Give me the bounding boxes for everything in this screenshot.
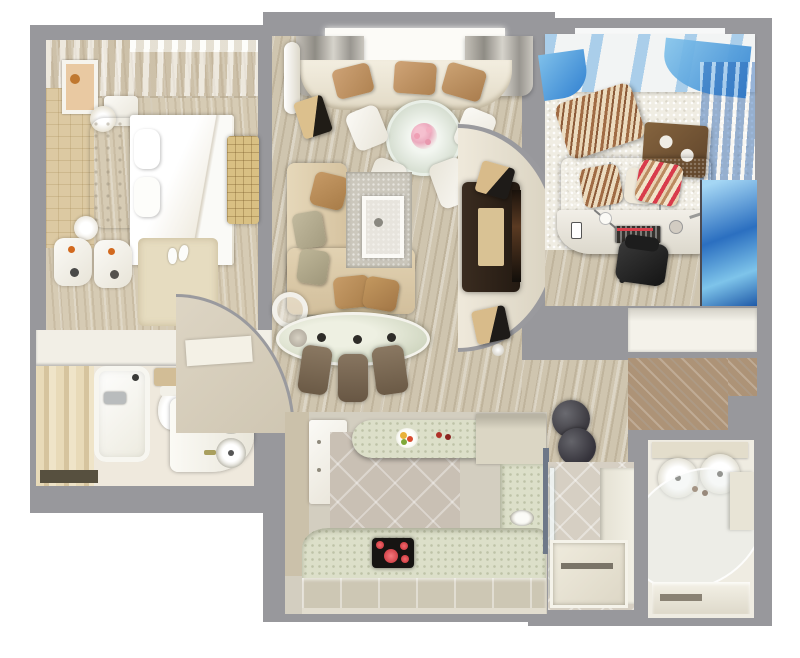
sofa-pillow-sage: [291, 210, 327, 251]
wardrobe-mural-blue: [700, 180, 757, 306]
cup: [110, 270, 119, 279]
tub-faucet: [104, 392, 126, 404]
bed-pillow: [134, 129, 160, 169]
bar-leg-dot: [317, 333, 326, 342]
round-sink: [216, 438, 246, 468]
pillow-striped-beige: [578, 163, 624, 209]
room-ensuite: [648, 440, 754, 618]
ensuite-shelf: [652, 442, 748, 458]
bathtub: [94, 366, 150, 462]
desk-phone: [571, 222, 582, 239]
wall-picture: [62, 60, 98, 114]
table-item: [374, 218, 383, 227]
office-chair: [611, 240, 673, 296]
bathroom-striped-tile-wall: [36, 366, 94, 486]
bar-leg-dot: [353, 335, 362, 344]
pillow-striped-red: [634, 158, 685, 207]
sofa-pillow-sage: [296, 248, 330, 286]
hall-wardrobe: [628, 308, 757, 352]
cup: [599, 212, 612, 225]
burner: [400, 542, 408, 550]
tv-cabinet: [462, 182, 520, 292]
cooktop: [372, 538, 414, 568]
condiment-dot: [436, 432, 442, 438]
ensuite-column: [730, 472, 754, 530]
balcony-step: [728, 358, 757, 396]
breakfast-bar: [352, 420, 476, 458]
ensuite-bench: [652, 582, 750, 614]
dining-chair: [344, 103, 391, 153]
bar-leg-dot: [387, 333, 396, 342]
condiment-dot: [445, 434, 451, 440]
faucet: [204, 450, 216, 455]
bar-pole: [289, 329, 307, 347]
cabinet-handle: [317, 440, 321, 444]
burner: [401, 555, 409, 563]
wall-end-knob: [492, 344, 504, 356]
fruit-dot: [400, 432, 407, 439]
corridor-north-wall: [522, 352, 628, 360]
coffee-table: [362, 196, 404, 258]
side-table-lamp: [74, 216, 98, 240]
slippers: [168, 248, 177, 264]
burner: [376, 541, 384, 549]
kitchen-sink: [510, 510, 534, 526]
armchair: [94, 240, 132, 288]
flower-dot: [425, 139, 431, 145]
flower-centerpiece: [411, 123, 437, 149]
room-kids: [545, 34, 755, 306]
cup: [70, 268, 79, 277]
seat-pillow-tan: [393, 61, 437, 96]
room-kitchen: [285, 412, 547, 614]
keyboard-red-row: [617, 228, 653, 231]
room-bedroom: [46, 40, 258, 332]
drain-strip: [561, 563, 613, 569]
wall-shower-ensuite: [634, 440, 648, 618]
armchair-button: [108, 248, 115, 255]
bar-stool: [338, 354, 368, 402]
cylinder-stool: [558, 428, 596, 466]
tv-screen: [512, 190, 521, 282]
floorplan-canvas: [0, 0, 800, 658]
blue-drape-corner: [538, 49, 590, 101]
sofa-pillow-tan: [361, 275, 400, 312]
fruit-dot: [401, 439, 407, 445]
mouse: [669, 220, 683, 234]
room-shower: [548, 462, 634, 610]
shelf-knob: [659, 135, 673, 149]
bed-pillow: [134, 177, 160, 217]
flower-dot: [414, 133, 420, 139]
counter-bottom: [302, 528, 546, 582]
base-cabinets: [302, 578, 546, 612]
room-balcony: [628, 358, 728, 430]
armchair-button: [68, 246, 75, 253]
fruit-bowl: [396, 428, 418, 448]
bathroom-dark-shelf: [40, 470, 98, 483]
doormat: [185, 336, 253, 367]
flower-dot: [426, 127, 432, 133]
cabinet-handle: [317, 468, 321, 472]
bar-stool: [297, 344, 333, 396]
quilted-bench: [227, 136, 259, 224]
tub-drain: [132, 374, 139, 381]
picture-detail: [70, 74, 80, 84]
speaker: [471, 305, 511, 345]
armchair: [54, 238, 92, 286]
burner: [384, 549, 398, 563]
shower-tray: [550, 540, 628, 608]
kick-strip: [302, 608, 546, 614]
bench-strip: [660, 594, 702, 601]
sink-drain: [228, 450, 234, 456]
bar-stool: [371, 344, 409, 396]
entry-cabinet: [476, 414, 546, 464]
fruit-dot: [407, 436, 413, 442]
tv-cabinet-panel: [478, 208, 504, 266]
bed-headboard: [90, 118, 132, 228]
